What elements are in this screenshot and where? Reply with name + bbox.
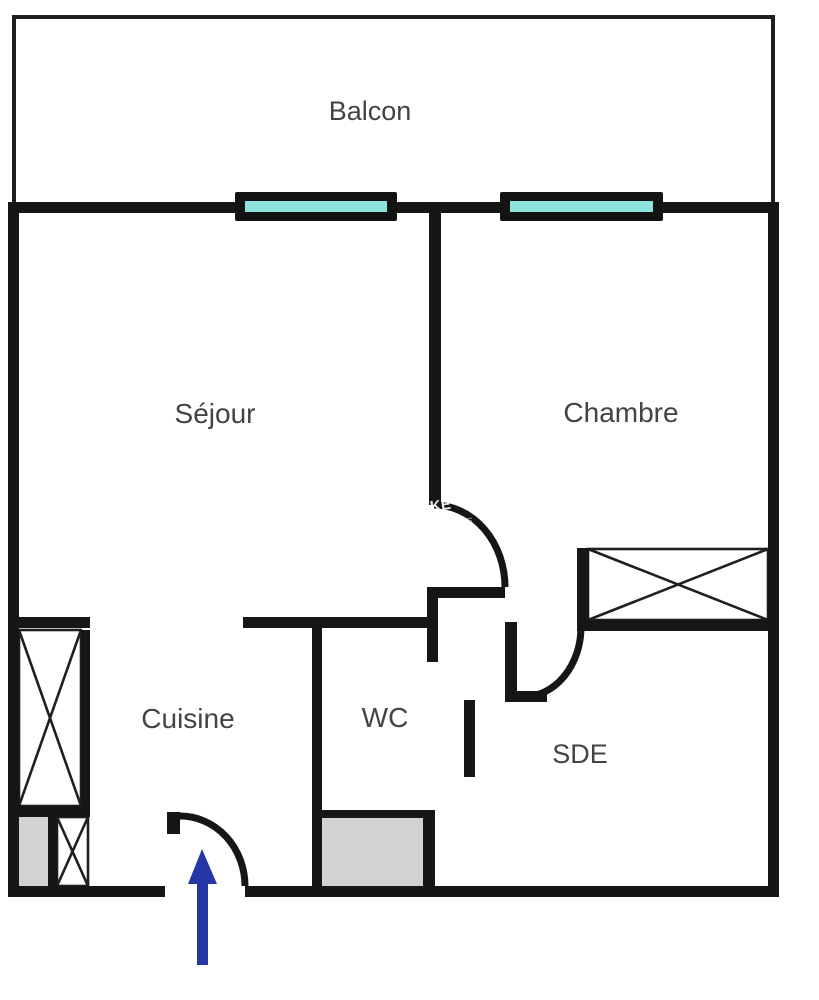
room-label-chambre: Chambre bbox=[563, 397, 678, 428]
cuisine-closet-right-wall bbox=[81, 630, 90, 813]
entrance-arrow-shaft bbox=[197, 880, 208, 965]
sde-corner-wall-vertical bbox=[505, 622, 517, 702]
sejour-chambre-wall bbox=[429, 213, 441, 505]
cuisine-shaft-divider bbox=[48, 817, 57, 891]
balcony-right-line bbox=[771, 15, 775, 207]
balcony-left-line bbox=[12, 15, 16, 207]
hall-wall-horizontal bbox=[427, 587, 505, 598]
right-wall bbox=[768, 202, 779, 897]
wc-shaft-box bbox=[322, 818, 423, 886]
room-label-cuisine: Cuisine bbox=[141, 703, 234, 734]
floorplan-svg: NKEANKEBalconSéjourChambreCuisineWCSDE bbox=[0, 0, 819, 1000]
bottom-wall-left bbox=[8, 886, 165, 897]
bottom-wall-right bbox=[245, 886, 779, 897]
chambre-closet-wall bbox=[577, 548, 589, 631]
room-label-sde: SDE bbox=[552, 739, 608, 769]
cuisine-top-wall bbox=[8, 617, 90, 628]
left-wall bbox=[8, 202, 19, 897]
room-label-balcon: Balcon bbox=[329, 96, 412, 126]
floorplan-page: NKEANKEBalconSéjourChambreCuisineWCSDE bbox=[0, 0, 819, 1000]
room-label-wc: WC bbox=[362, 702, 409, 733]
shaft-right-wall bbox=[423, 810, 435, 897]
shaft-top-wall bbox=[322, 810, 423, 818]
window-sejour-glass bbox=[245, 201, 387, 212]
cuisine-closet-bottom-wall bbox=[8, 806, 90, 817]
wc-top-wall bbox=[243, 617, 438, 628]
window-chambre-glass bbox=[510, 201, 653, 212]
room-label-sejour: Séjour bbox=[175, 398, 256, 429]
chambre-bottom-wall bbox=[586, 620, 768, 631]
entrance-door-leaf bbox=[167, 812, 180, 834]
wc-door-leaf bbox=[464, 700, 475, 777]
wc-left-wall bbox=[312, 617, 322, 897]
cuisine-shaft-box bbox=[17, 817, 48, 887]
balcony-top-line bbox=[12, 15, 775, 19]
